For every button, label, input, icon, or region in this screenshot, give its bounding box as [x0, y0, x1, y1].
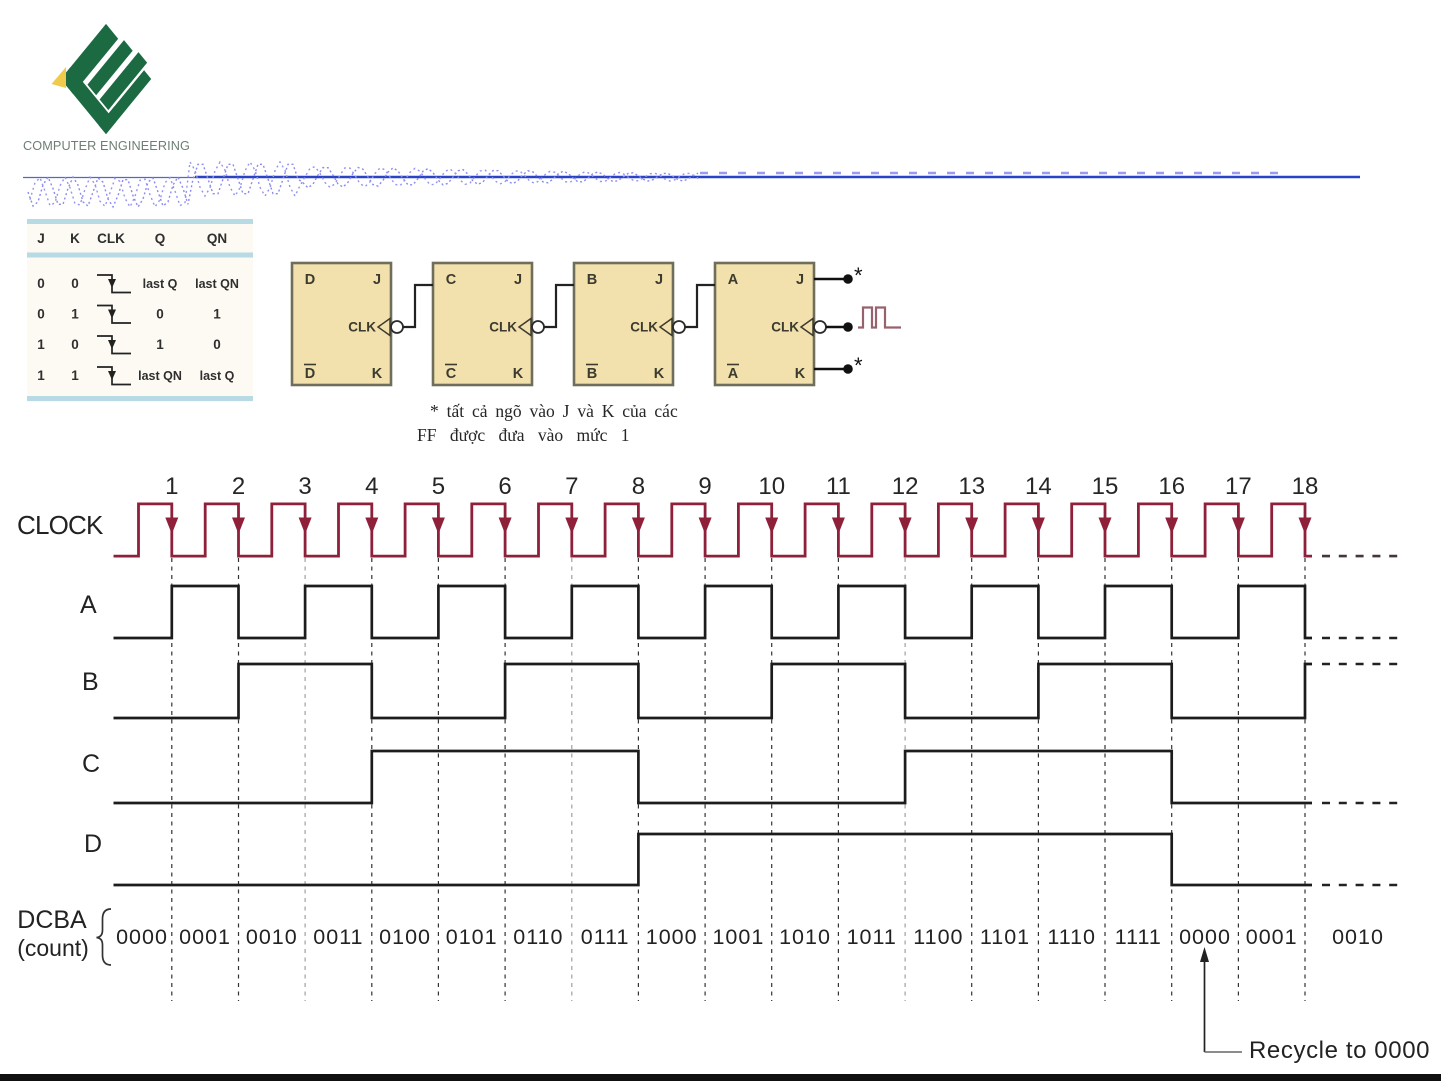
- svg-text:1111: 1111: [1115, 925, 1162, 949]
- svg-text:0: 0: [37, 307, 45, 322]
- svg-text:D: D: [305, 366, 315, 382]
- svg-text:4: 4: [365, 473, 378, 500]
- svg-text:0001: 0001: [179, 925, 231, 949]
- svg-text:0111: 0111: [581, 925, 630, 949]
- svg-text:12: 12: [892, 473, 919, 500]
- svg-text:J: J: [796, 272, 804, 288]
- svg-text:D: D: [305, 272, 315, 288]
- svg-text:6: 6: [498, 473, 511, 500]
- svg-text:0010: 0010: [246, 925, 298, 949]
- svg-text:14: 14: [1025, 473, 1052, 500]
- svg-text:B: B: [82, 668, 99, 696]
- svg-text:last Q: last Q: [200, 369, 235, 383]
- svg-text:A: A: [728, 366, 739, 382]
- svg-text:J: J: [373, 272, 381, 288]
- svg-text:0011: 0011: [313, 925, 363, 949]
- svg-text:1000: 1000: [646, 925, 698, 949]
- svg-text:0: 0: [213, 337, 221, 352]
- svg-text:16: 16: [1158, 473, 1185, 500]
- svg-text:1: 1: [37, 368, 45, 383]
- svg-text:1: 1: [37, 337, 45, 352]
- svg-text:K: K: [372, 366, 383, 382]
- svg-text:0000: 0000: [1179, 925, 1231, 949]
- svg-text:1: 1: [213, 307, 221, 322]
- svg-text:18: 18: [1292, 473, 1319, 500]
- svg-text:CLK: CLK: [348, 320, 376, 335]
- svg-text:J: J: [514, 272, 522, 288]
- svg-text:13: 13: [958, 473, 985, 500]
- svg-text:CLK: CLK: [489, 320, 517, 335]
- svg-text:QN: QN: [207, 231, 227, 246]
- svg-text:A: A: [80, 591, 97, 619]
- svg-text:COMPUTER ENGINEERING: COMPUTER ENGINEERING: [23, 139, 190, 153]
- svg-text:K: K: [795, 366, 806, 382]
- svg-text:1100: 1100: [913, 925, 963, 949]
- svg-text:CLK: CLK: [771, 320, 799, 335]
- svg-text:* tất cả ngõ vào J và K của cá: * tất cả ngõ vào J và K của các: [430, 401, 678, 421]
- svg-text:*: *: [854, 263, 863, 288]
- svg-text:2: 2: [232, 473, 245, 500]
- svg-text:0100: 0100: [379, 925, 431, 949]
- svg-text:0: 0: [71, 276, 79, 291]
- svg-text:0: 0: [37, 276, 45, 291]
- svg-text:Q: Q: [155, 231, 166, 246]
- svg-text:*: *: [854, 353, 863, 378]
- svg-text:J: J: [37, 231, 45, 246]
- svg-text:A: A: [728, 272, 739, 288]
- svg-text:1010: 1010: [779, 925, 831, 949]
- svg-text:J: J: [655, 272, 663, 288]
- svg-text:CLOCK: CLOCK: [17, 510, 104, 540]
- svg-text:CLK: CLK: [97, 231, 125, 246]
- svg-text:1: 1: [71, 307, 79, 322]
- svg-text:0101: 0101: [446, 925, 498, 949]
- svg-text:5: 5: [432, 473, 445, 500]
- svg-text:15: 15: [1092, 473, 1119, 500]
- svg-text:B: B: [587, 366, 597, 382]
- svg-text:7: 7: [565, 473, 578, 500]
- svg-text:0: 0: [156, 307, 164, 322]
- svg-text:3: 3: [298, 473, 311, 500]
- svg-text:B: B: [587, 272, 597, 288]
- svg-text:1110: 1110: [1047, 925, 1096, 949]
- svg-text:1: 1: [156, 337, 164, 352]
- svg-text:10: 10: [758, 473, 785, 500]
- svg-text:DCBA: DCBA: [17, 906, 87, 934]
- svg-text:0: 0: [71, 337, 79, 352]
- svg-text:K: K: [70, 231, 80, 246]
- svg-text:9: 9: [698, 473, 711, 500]
- svg-text:CLK: CLK: [630, 320, 658, 335]
- svg-text:last QN: last QN: [138, 369, 182, 383]
- svg-text:Recycle to 0000: Recycle to 0000: [1249, 1037, 1430, 1064]
- svg-text:8: 8: [632, 473, 645, 500]
- svg-text:0000: 0000: [116, 925, 168, 949]
- svg-text:C: C: [446, 272, 457, 288]
- svg-text:D: D: [84, 830, 102, 858]
- svg-text:last QN: last QN: [195, 277, 239, 291]
- svg-text:(count): (count): [17, 935, 89, 961]
- svg-text:K: K: [654, 366, 665, 382]
- svg-text:17: 17: [1225, 473, 1252, 500]
- svg-text:11: 11: [826, 473, 851, 500]
- svg-text:1: 1: [71, 368, 79, 383]
- svg-text:1001: 1001: [712, 925, 764, 949]
- svg-text:0010: 0010: [1332, 925, 1384, 949]
- svg-text:FF được đưa vào mức 1: FF được đưa vào mức 1: [417, 425, 629, 445]
- svg-text:1: 1: [165, 473, 178, 500]
- svg-text:K: K: [513, 366, 524, 382]
- svg-text:0001: 0001: [1246, 925, 1298, 949]
- svg-text:C: C: [82, 750, 100, 778]
- svg-text:C: C: [446, 366, 457, 382]
- svg-text:last Q: last Q: [143, 277, 178, 291]
- svg-text:0110: 0110: [513, 925, 563, 949]
- svg-text:1101: 1101: [980, 925, 1030, 949]
- svg-text:1011: 1011: [847, 925, 897, 949]
